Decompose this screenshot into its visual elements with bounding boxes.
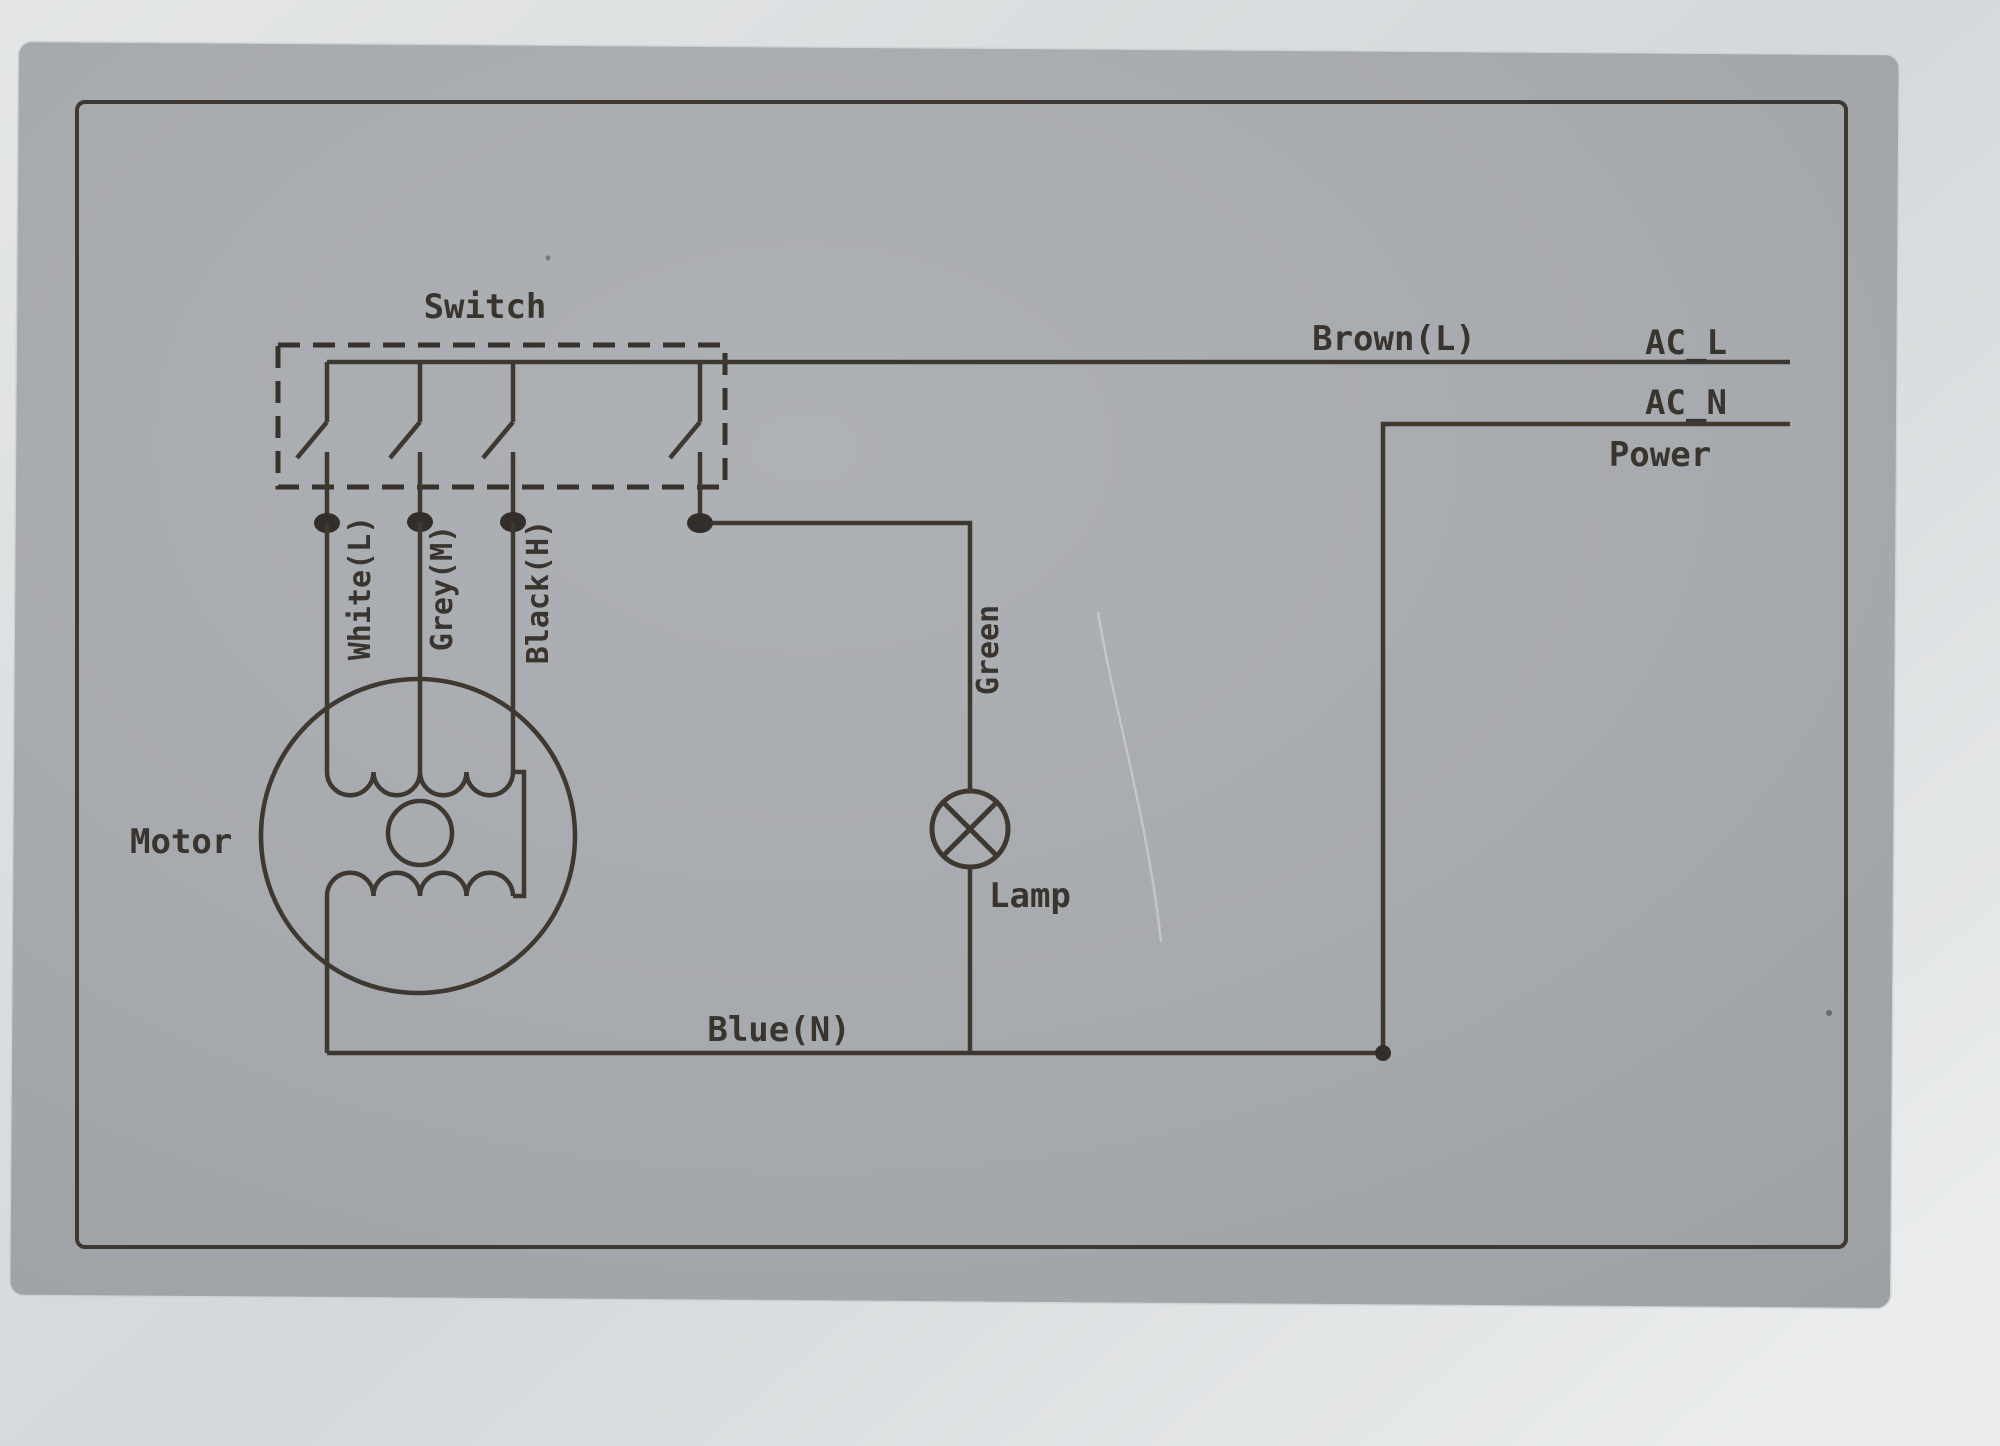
blue-n-label: Blue(N) xyxy=(707,1010,850,1050)
ink-speck xyxy=(1826,1010,1832,1016)
ac-n-label: AC_N xyxy=(1645,383,1727,423)
neutral-junction-dot xyxy=(1375,1045,1391,1061)
scanned-wiring-diagram: Switch Brown(L) AC_L AC_N Power White(L)… xyxy=(0,0,2000,1446)
switch-pole4-terminal-dot xyxy=(687,513,713,533)
paper-card xyxy=(10,41,1900,1308)
switch-label: Switch xyxy=(424,287,547,327)
grey-m-label: Grey(M) xyxy=(425,525,460,651)
diagram-canvas: Switch Brown(L) AC_L AC_N Power White(L)… xyxy=(0,0,2000,1446)
power-label: Power xyxy=(1609,435,1711,475)
green-label: Green xyxy=(971,605,1006,695)
brown-l-label: Brown(L) xyxy=(1312,319,1476,359)
black-h-label: Black(H) xyxy=(521,520,556,665)
motor-label: Motor xyxy=(130,822,232,862)
lamp-label: Lamp xyxy=(989,876,1071,916)
white-l-label: White(L) xyxy=(343,516,378,661)
ac-l-label: AC_L xyxy=(1645,323,1727,363)
ink-speck xyxy=(546,256,551,261)
